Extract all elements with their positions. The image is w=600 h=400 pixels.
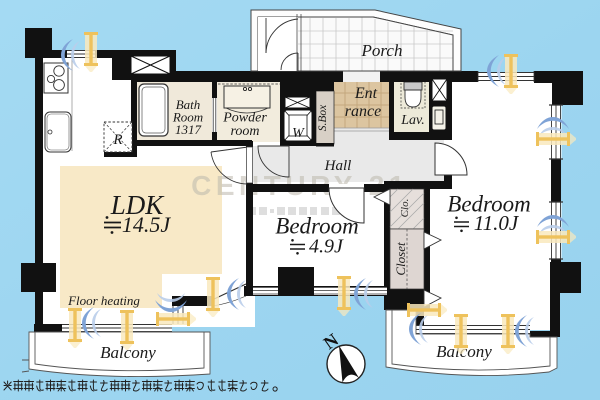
svg-text:Floor heating: Floor heating [67, 293, 140, 308]
svg-text:rance: rance [345, 103, 381, 120]
svg-text:W: W [292, 126, 305, 141]
svg-text:S.Box: S.Box [317, 104, 329, 131]
svg-text:1317: 1317 [175, 122, 202, 137]
svg-text:R: R [112, 132, 122, 148]
svg-text:Hall: Hall [324, 158, 352, 174]
svg-text:14.5J: 14.5J [122, 212, 172, 237]
svg-text:Clo.: Clo. [399, 199, 411, 218]
svg-text:4.9J: 4.9J [309, 236, 344, 258]
svg-text:Ent: Ent [354, 85, 378, 102]
svg-text:11.0J: 11.0J [474, 211, 520, 235]
svg-text:Porch: Porch [361, 41, 403, 60]
svg-text:room: room [230, 124, 259, 139]
svg-text:Lav.: Lav. [400, 113, 424, 128]
svg-text:Closet: Closet [393, 242, 408, 276]
